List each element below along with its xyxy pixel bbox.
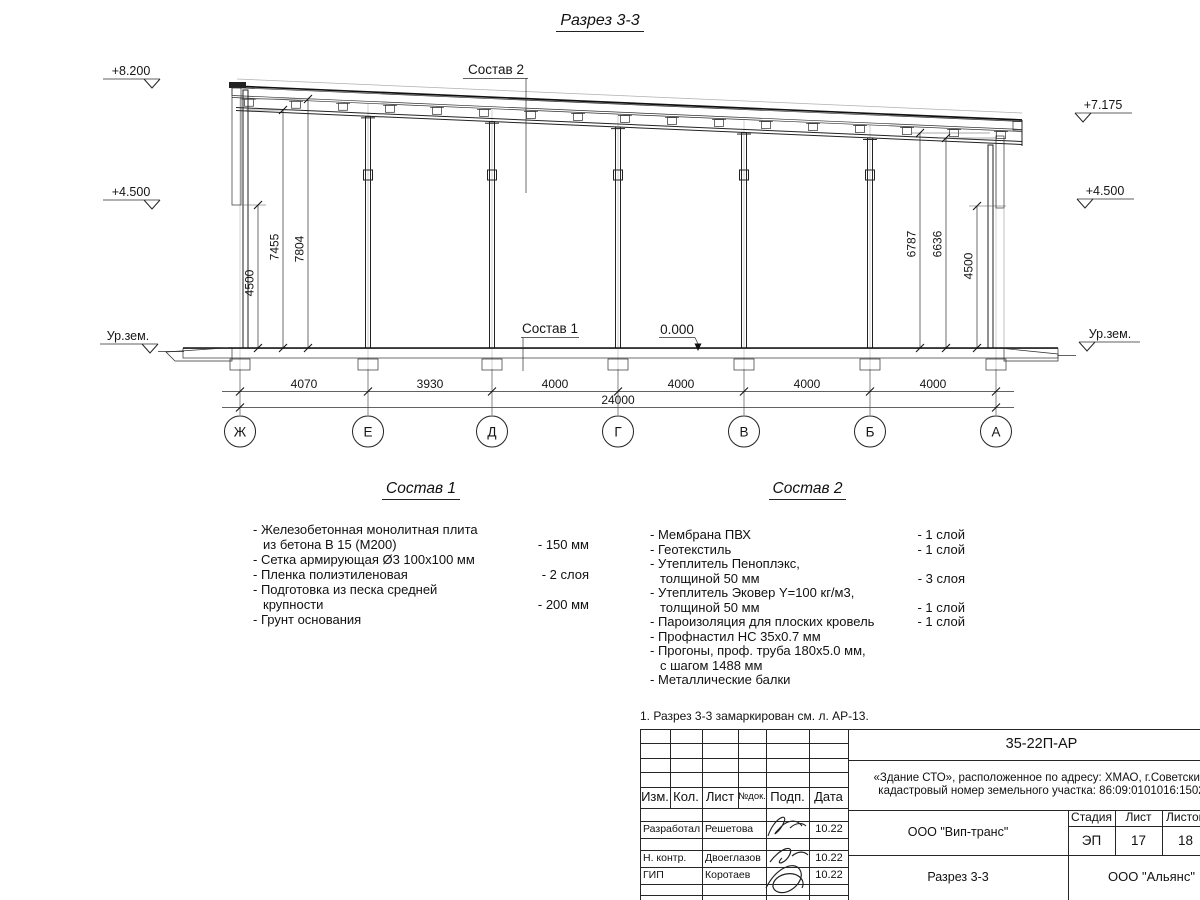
row-date-1: 10.22: [810, 850, 848, 867]
row-role-1: Н. контр.: [643, 850, 702, 867]
elev-4500-left: +4.500: [112, 185, 151, 199]
leader-roof-label: Состав 2: [468, 62, 524, 77]
titleblock-line: [1068, 826, 1200, 827]
titleblock-line: [640, 884, 848, 885]
titleblock-line: [640, 821, 848, 822]
composition-2-list: - Мембрана ПВХ- 1 слой- Геотекстиль- 1 с…: [650, 528, 965, 688]
layer-item: - Прогоны, проф. труба 180х5.0 мм,: [650, 644, 965, 659]
layer-item: - Профнастил НС 35х0.7 мм: [650, 630, 965, 645]
layer-item: - Металлические балки: [650, 673, 965, 688]
sheet-title: Разрез 3-3: [848, 855, 1068, 900]
layer-value: - 3 слоя: [918, 572, 965, 587]
titleblock-line: [702, 729, 703, 808]
leader-floor-label: Состав 1: [522, 321, 578, 336]
vdim-left-4500: 4500: [243, 269, 257, 296]
span-dim-0: 4070: [291, 377, 318, 391]
layer-value: - 1 слой: [917, 528, 965, 543]
leader-labels: Состав 2 Состав 1 0.000: [463, 62, 702, 371]
axis-bubble-4: В: [739, 425, 748, 440]
layer-text: - Профнастил НС 35х0.7 мм: [650, 630, 821, 645]
titleblock-line: [670, 729, 671, 808]
purlins: [242, 99, 1008, 138]
axis-bubbles: Ж Е Д Г В Б А: [225, 416, 1012, 447]
axis-bubble-0: Ж: [234, 425, 247, 440]
titleblock-line: [640, 729, 641, 808]
titleblock-line: [640, 808, 641, 900]
span-dim-1: 3930: [417, 377, 444, 391]
layer-text: из бетона В 15 (М200): [253, 537, 397, 552]
signature-gip: [766, 848, 808, 892]
layer-item: - Сетка армирующая Ø3 100х100 мм: [253, 552, 589, 567]
col-ndok: №док.: [738, 787, 766, 808]
layer-item: - Утеплитель Пеноплэкс,: [650, 557, 965, 572]
elev-8200: +8.200: [112, 64, 151, 78]
sheet-note: 1. Разрез 3-3 замаркирован см. л. АР-13.: [640, 709, 869, 723]
stage-label: Стадия: [1068, 810, 1115, 826]
purlin: [762, 121, 771, 128]
span-dim-5: 4000: [920, 377, 947, 391]
elev-ground-left: Ур.зем.: [107, 329, 149, 343]
purlin: [621, 115, 630, 122]
project-line1: «Здание СТО», расположенное по адресу: Х…: [873, 772, 1200, 785]
axis-bubble-5: Б: [866, 425, 875, 440]
org-name: ООО "Вип-транс": [848, 810, 1068, 855]
layer-text: - Сетка армирующая Ø3 100х100 мм: [253, 552, 475, 567]
layer-text: - Прогоны, проф. труба 180х5.0 мм,: [650, 644, 866, 659]
layer-item: с шагом 1488 мм: [650, 659, 965, 674]
stage-value: ЭП: [1068, 826, 1115, 855]
floor-slab-band: [183, 349, 1058, 359]
col-list: Лист: [702, 787, 738, 808]
row-name-2: Коротаев: [705, 867, 765, 884]
axis-grid-lines: [240, 98, 996, 415]
eaves-endcap: [1013, 122, 1022, 131]
zero-mark-arrow: [695, 344, 702, 352]
right-wall-panel: [996, 136, 1004, 208]
roof-assembly: [232, 79, 1022, 146]
composition-1-list: - Железобетонная монолитная плитаиз бето…: [253, 522, 589, 627]
composition-1-heading: Состав 1: [253, 480, 589, 498]
drawing-sheet: Разрез 3-3: [0, 0, 1200, 900]
titleblock-line: [640, 895, 848, 896]
layer-text: толщиной 50 мм: [650, 572, 760, 587]
layer-text: - Геотекстиль: [650, 543, 731, 558]
titleblock-line: [640, 729, 848, 730]
layer-value: - 1 слой: [917, 601, 965, 616]
purlin: [433, 107, 442, 114]
axis-bubble-3: Г: [614, 425, 622, 440]
elev-4500-right: +4.500: [1086, 184, 1125, 198]
titleblock-line: [702, 808, 703, 900]
sheets-label: Листов: [1162, 810, 1200, 826]
layer-value: - 1 слой: [917, 543, 965, 558]
axis-bubble-6: А: [991, 425, 1000, 440]
layer-item: толщиной 50 мм- 1 слой: [650, 601, 965, 616]
signature-razrabotal: [768, 817, 806, 836]
floor-slab: [158, 348, 1076, 371]
layer-text: - Мембрана ПВХ: [650, 528, 751, 543]
layer-text: - Пленка полиэтиленовая: [253, 567, 408, 582]
layer-item: из бетона В 15 (М200)- 150 мм: [253, 537, 589, 552]
vdim-right-4500: 4500: [962, 252, 976, 279]
titleblock-line: [640, 808, 848, 809]
layer-value: - 150 мм: [538, 537, 589, 552]
layer-item: - Пленка полиэтиленовая- 2 слоя: [253, 567, 589, 582]
purlin: [245, 99, 254, 106]
titleblock-line: [1068, 810, 1069, 900]
columns: [361, 116, 877, 348]
layer-value: - 200 мм: [538, 597, 589, 612]
composition-1-heading-text: Состав 1: [382, 480, 460, 500]
row-role-0: Разработал: [643, 821, 702, 838]
titleblock-line: [848, 729, 849, 900]
row-name-1: Двоеглазов: [705, 850, 765, 867]
layer-value: - 1 слой: [917, 615, 965, 630]
layer-text: - Металлические балки: [650, 673, 790, 688]
span-dim-4: 4000: [794, 377, 821, 391]
titleblock-line: [640, 787, 848, 788]
layer-item: крупности- 200 мм: [253, 597, 589, 612]
titleblock-line: [640, 772, 848, 773]
layer-text: - Пароизоляция для плоских кровель: [650, 615, 874, 630]
purlin: [574, 113, 583, 120]
layer-text: - Утеплитель Эковер Y=100 кг/м3,: [650, 586, 854, 601]
purlin: [903, 128, 912, 135]
titleblock-line: [848, 855, 1200, 856]
left-parapet-cap: [229, 82, 246, 88]
row-role-2: ГИП: [643, 867, 702, 884]
roof-top-line: [232, 86, 1022, 120]
layer-item: - Утеплитель Эковер Y=100 кг/м3,: [650, 586, 965, 601]
composition-1: Состав 1 - Железобетонная монолитная пли…: [253, 480, 589, 627]
layer-text: - Подготовка из песка средней: [253, 582, 437, 597]
span-dim-3: 4000: [668, 377, 695, 391]
purlin: [480, 109, 489, 116]
layer-item: - Геотекстиль- 1 слой: [650, 543, 965, 558]
purlin: [856, 126, 865, 133]
purlin: [386, 105, 395, 112]
purlin: [527, 111, 536, 118]
project-line2: кадастровый номер земельного участка: 86…: [878, 785, 1200, 798]
right-column: [988, 145, 993, 348]
col-izm: Изм.: [640, 787, 670, 808]
left-column: [243, 90, 248, 348]
zero-mark-label: 0.000: [660, 322, 694, 337]
roof-insulation-band: [232, 88, 1022, 130]
titleblock-line: [640, 850, 848, 851]
layer-value: - 2 слоя: [542, 567, 589, 582]
left-apron: [166, 348, 232, 362]
sheet-label: Лист: [1115, 810, 1162, 826]
col-podp: Подп.: [766, 787, 809, 808]
layer-text: крупности: [253, 597, 323, 612]
project-name: «Здание СТО», расположенное по адресу: Х…: [848, 761, 1200, 809]
col-data: Дата: [809, 787, 848, 808]
col-kol: Кол.: [670, 787, 702, 808]
org2-name: ООО "Альянс": [1068, 855, 1200, 900]
layer-text: - Железобетонная монолитная плита: [253, 522, 478, 537]
row-name-0: Решетова: [705, 821, 765, 838]
titleblock-line: [848, 810, 1200, 811]
purlin: [339, 103, 348, 110]
elev-7175: +7.175: [1084, 98, 1123, 112]
purlin: [715, 119, 724, 126]
end-walls: [229, 82, 1004, 348]
row-date-2: 10.22: [810, 867, 848, 884]
purlin: [292, 101, 301, 108]
titleblock-line: [848, 729, 1200, 730]
titleblock-line: [640, 743, 848, 744]
titleblock-line: [848, 760, 1200, 761]
layer-item: - Пароизоляция для плоских кровель- 1 сл…: [650, 615, 965, 630]
composition-2-heading-text: Состав 2: [769, 480, 847, 500]
layer-text: с шагом 1488 мм: [650, 659, 762, 674]
composition-2: Состав 2 - Мембрана ПВХ- 1 слой- Геотекс…: [650, 480, 965, 688]
axis-bubble-2: Д: [487, 425, 496, 440]
span-dim-2: 4000: [542, 377, 569, 391]
row-date-0: 10.22: [810, 821, 848, 838]
titleblock-line: [1115, 810, 1116, 855]
section-drawing: 4500 7455 7804 6787 6636 4500 4070 3930 …: [0, 0, 1200, 470]
titleblock-line: [1162, 810, 1163, 855]
vdim-left-7455: 7455: [268, 233, 282, 260]
sheets-value: 18: [1162, 826, 1200, 855]
vdim-right-6787: 6787: [905, 230, 919, 257]
titleblock-line: [640, 867, 848, 868]
axis-bubble-1: Е: [363, 425, 372, 440]
signatures: [762, 806, 812, 900]
titleblock-line: [766, 729, 767, 808]
titleblock-line: [738, 729, 739, 808]
sheet-value: 17: [1115, 826, 1162, 855]
layer-item: - Железобетонная монолитная плита: [253, 522, 589, 537]
purlin: [668, 117, 677, 124]
layer-text: толщиной 50 мм: [650, 601, 760, 616]
purlin: [809, 124, 818, 131]
layer-item: - Грунт основания: [253, 612, 589, 627]
layer-item: - Мембрана ПВХ- 1 слой: [650, 528, 965, 543]
titleblock-line: [640, 758, 848, 759]
layer-item: толщиной 50 мм- 3 слоя: [650, 572, 965, 587]
vdim-right-6636: 6636: [931, 230, 945, 257]
titleblock-line: [809, 729, 810, 808]
composition-2-heading: Состав 2: [650, 480, 965, 498]
right-apron: [1004, 349, 1058, 362]
elev-ground-right: Ур.зем.: [1089, 327, 1131, 341]
layer-text: - Утеплитель Пеноплэкс,: [650, 557, 800, 572]
layer-item: - Подготовка из песка средней: [253, 582, 589, 597]
vdim-left-7804: 7804: [293, 235, 307, 262]
doc-code: 35-22П-АР: [848, 730, 1200, 759]
titleblock-line: [640, 838, 848, 839]
layer-text: - Грунт основания: [253, 612, 361, 627]
